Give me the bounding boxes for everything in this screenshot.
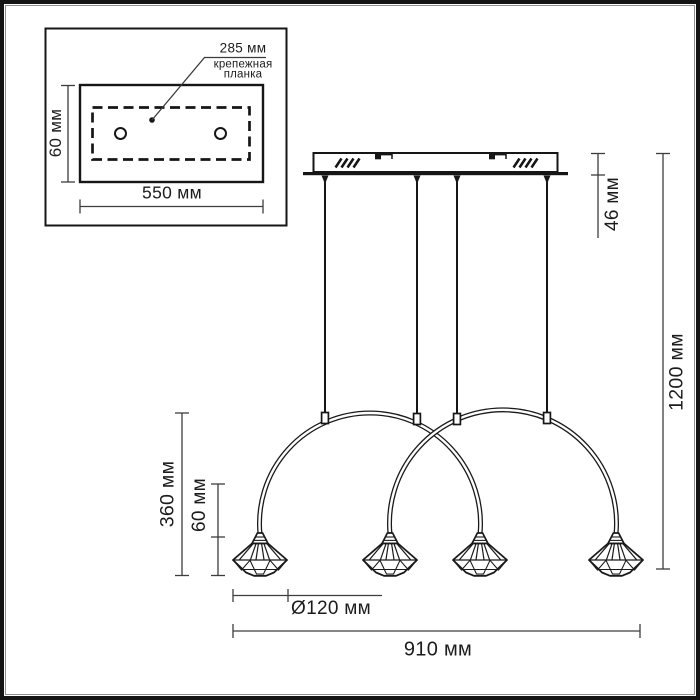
plate-outline [80,85,263,182]
suspension-wires [322,176,551,422]
diagram-linework [0,0,700,700]
arc-left [260,413,481,534]
dim-canopy-height-label: 46 мм [602,177,624,231]
dim-overall-width-label: 910 мм [404,639,472,662]
dim-overall-height-label: 1200 мм [666,333,689,411]
shade-3 [453,533,507,576]
shade-2 [363,533,417,576]
mounting-bracket-label: крепежная планка [214,61,273,80]
fixture-dimension-diagram: 285 мм крепежная планка 60 мм 550 мм 46 … [0,0,700,700]
dim-shade-height-label: 60 мм [189,478,211,532]
dim-plate-width-label: 550 мм [142,183,202,204]
screw-hole-right [215,128,226,139]
screw-hole-left [115,128,126,139]
dim-shade-height-line [211,484,225,576]
dim-overall-width-line [233,624,640,638]
dim-shade-diameter-label: Ø120 мм [291,598,371,620]
shade-4 [589,533,643,576]
dim-plate-height-label: 60 мм [46,109,66,158]
dim-arc-drop-label: 360 мм [157,461,180,528]
ceiling-bar [303,153,568,175]
dim-hole-spacing-label: 285 мм [220,41,267,56]
shade-1 [233,533,287,576]
